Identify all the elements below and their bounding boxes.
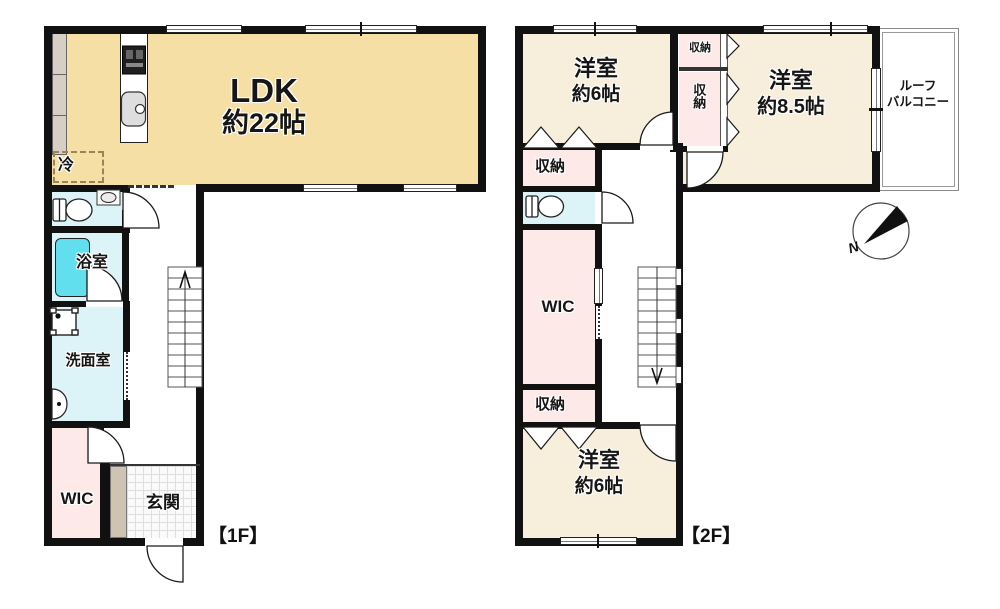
- label-bedroom-s-size: 約6帖: [575, 477, 624, 496]
- room-toilet-2f: [523, 192, 595, 224]
- door-arc-toilet-2f: [602, 192, 633, 223]
- sliding-door-dots: [126, 352, 128, 400]
- wall: [670, 26, 678, 150]
- wall: [515, 224, 602, 230]
- label-balcony-line1: ルーフ: [900, 80, 937, 93]
- stair-wall-opening: [674, 318, 682, 334]
- wall: [515, 26, 523, 546]
- floor-label-1f: 【1F】: [208, 521, 268, 548]
- wall: [515, 186, 602, 192]
- wall: [44, 226, 130, 233]
- room-wic-1f: [52, 428, 103, 538]
- wall: [100, 461, 110, 546]
- wall: [676, 184, 880, 192]
- sliding-door-dots: [598, 306, 600, 339]
- door-opening: [687, 146, 723, 152]
- label-bedroom-nw-size: 約6帖: [572, 85, 621, 104]
- floor-plan-canvas: N LDK 約22帖 冷 浴室 洗面室 WIC 玄関 【1F】 洋室 約6帖 洋…: [0, 0, 1000, 609]
- label-bedroom-s: 洋室: [578, 450, 620, 471]
- label-closet-left-lower: 収納: [535, 397, 565, 412]
- room-toilet-1f: [52, 192, 122, 227]
- door-opening: [86, 301, 123, 307]
- label-closet-left-upper: 収納: [535, 159, 565, 174]
- window-mullion: [597, 534, 599, 548]
- label-bedroom-ne: 洋室: [769, 70, 813, 92]
- wall: [478, 26, 486, 192]
- roof-balcony: [878, 28, 959, 191]
- label-bathroom: 浴室: [76, 255, 108, 271]
- window: [166, 25, 242, 33]
- wall: [122, 226, 129, 307]
- label-bedroom-ne-size: 約8.5帖: [757, 97, 825, 117]
- label-washroom: 洗面室: [65, 353, 110, 368]
- entrance-step-strip: [110, 466, 127, 538]
- wall: [515, 384, 602, 390]
- stairs-down-arrow: [652, 368, 662, 383]
- label-wic-2f: WIC: [541, 298, 574, 315]
- label-ldk: LDK: [230, 74, 298, 108]
- label-fridge: 冷: [58, 158, 74, 174]
- floor-label-2f: 【2F】: [681, 521, 741, 548]
- wall: [679, 67, 728, 71]
- door-opening: [640, 422, 676, 429]
- window-mullion: [594, 22, 596, 36]
- room-bedroom-ne: [683, 152, 728, 184]
- wall: [110, 464, 200, 466]
- door-opening: [595, 192, 602, 224]
- stair-wall-opening: [674, 268, 682, 286]
- counter-divider: [52, 74, 67, 75]
- stair-wall-opening: [674, 366, 682, 384]
- wall: [44, 185, 130, 192]
- label-entrance: 玄関: [146, 494, 180, 511]
- label-balcony-line2: バルコニー: [887, 96, 949, 109]
- balcony-inner-line: [882, 32, 955, 187]
- window: [403, 184, 457, 192]
- wall: [44, 26, 52, 546]
- kitchen-island: [120, 33, 148, 143]
- closet-door-track: [720, 32, 728, 146]
- counter-divider: [52, 115, 67, 116]
- stairs-2f: [638, 267, 676, 387]
- window: [763, 25, 868, 33]
- compass: N: [846, 203, 909, 259]
- wall: [196, 184, 204, 546]
- door-opening: [145, 538, 183, 546]
- door-opening: [122, 192, 129, 210]
- window-mullion: [869, 108, 883, 111]
- label-closet-top: 収納: [689, 43, 711, 54]
- window-wic: [594, 268, 603, 304]
- compass-circle: [853, 203, 909, 259]
- label-closet-mid: 収納: [692, 83, 705, 109]
- window-mullion: [360, 22, 362, 36]
- label-wic-1f: WIC: [60, 490, 93, 507]
- window: [303, 184, 358, 192]
- stairs-up-arrow: [180, 272, 190, 288]
- door-arc-entrance: [147, 546, 183, 582]
- door-opening: [640, 143, 673, 150]
- wall: [44, 26, 486, 34]
- wall: [44, 421, 130, 428]
- window-mullion: [830, 22, 832, 36]
- compass-north-label: N: [846, 238, 861, 257]
- compass-needle-icon: [864, 206, 908, 244]
- kitchen-counter: [52, 33, 67, 155]
- label-bedroom-nw: 洋室: [574, 58, 618, 80]
- open-wall-dashes: [128, 185, 174, 188]
- label-ldk-size: 約22帖: [222, 110, 306, 138]
- wall: [676, 143, 683, 546]
